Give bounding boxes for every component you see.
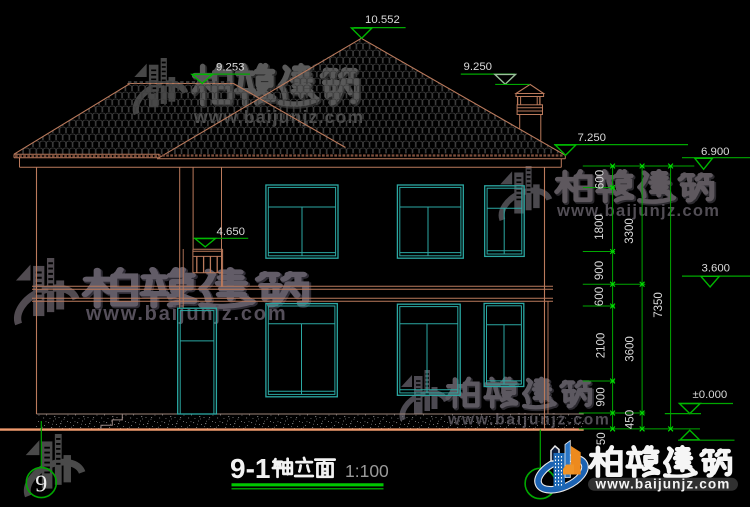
svg-text:3300: 3300 — [624, 218, 636, 244]
svg-text:600: 600 — [594, 287, 606, 306]
svg-text:2100: 2100 — [596, 333, 608, 359]
svg-text:10.552: 10.552 — [365, 14, 400, 26]
svg-text:50: 50 — [596, 432, 608, 445]
svg-text:900: 900 — [594, 261, 606, 280]
svg-text:±0.000: ±0.000 — [693, 389, 728, 401]
svg-text:450: 450 — [625, 410, 637, 429]
svg-text:9.253: 9.253 — [216, 62, 245, 74]
svg-text:3.600: 3.600 — [702, 263, 731, 275]
svg-text:3600: 3600 — [625, 336, 637, 362]
svg-text:1:100: 1:100 — [345, 461, 389, 481]
svg-text:1800: 1800 — [594, 214, 606, 240]
svg-text:7350: 7350 — [653, 292, 665, 318]
svg-text:6.900: 6.900 — [701, 146, 730, 158]
svg-text:600: 600 — [595, 170, 607, 189]
svg-text:www.baijunjz.com: www.baijunjz.com — [556, 202, 720, 220]
svg-text:900: 900 — [596, 387, 608, 406]
svg-text:4.650: 4.650 — [217, 226, 246, 238]
svg-text:www.baijunjz.com: www.baijunjz.com — [595, 476, 731, 491]
svg-text:9.250: 9.250 — [464, 61, 493, 73]
svg-text:7.250: 7.250 — [578, 132, 607, 144]
svg-text:9: 9 — [35, 472, 47, 498]
svg-text:www.baijunjz.com: www.baijunjz.com — [85, 303, 287, 325]
svg-text:9-1: 9-1 — [230, 453, 270, 484]
